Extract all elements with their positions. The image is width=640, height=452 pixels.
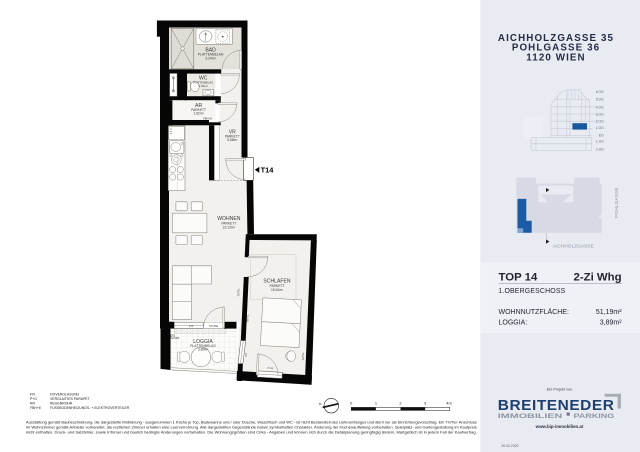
svg-text:WOHNNUTZFLÄCHE:: WOHNNUTZFLÄCHE:: [499, 308, 569, 316]
svg-text:PARKING: PARKING: [574, 413, 615, 420]
svg-text:FIX: FIX: [30, 393, 36, 397]
svg-text:RR: RR: [175, 336, 179, 340]
svg-text:REGENROHR: REGENROHR: [50, 401, 73, 405]
svg-text:5.24m²: 5.24m²: [205, 56, 216, 60]
svg-text:FBH+E: FBH+E: [203, 117, 212, 121]
svg-text:TOP 14: TOP 14: [499, 271, 539, 283]
svg-text:www.bip-immobilien.at: www.bip-immobilien.at: [535, 424, 584, 429]
svg-text:FIXVERGLASUNG: FIXVERGLASUNG: [50, 393, 80, 397]
svg-text:6.OG: 6.OG: [596, 90, 604, 94]
svg-text:1.OG: 1.OG: [596, 126, 604, 130]
svg-text:FIX: FIX: [189, 324, 193, 328]
svg-text:1.UG: 1.UG: [596, 140, 604, 144]
svg-text:POHLGASSE: POHLGASSE: [614, 187, 619, 218]
svg-text:3.89m²: 3.89m²: [198, 348, 209, 352]
svg-text:1.32m²: 1.32m²: [199, 84, 208, 88]
svg-text:2.UG: 2.UG: [596, 148, 604, 152]
svg-text:1120 WIEN: 1120 WIEN: [526, 52, 585, 63]
svg-text:STUFE: STUFE: [209, 324, 218, 328]
svg-text:VERGLASTES PARAPET: VERGLASTES PARAPET: [50, 397, 91, 401]
svg-text:5.68m²: 5.68m²: [227, 138, 238, 142]
svg-text:P+G: P+G: [267, 366, 273, 370]
svg-text:TV/TEL: TV/TEL: [302, 352, 305, 361]
svg-text:TV/TEL: TV/TEL: [247, 314, 250, 323]
svg-text:1: 1: [375, 400, 377, 405]
svg-text:3: 3: [424, 400, 426, 405]
svg-text:22.13m²: 22.13m²: [223, 226, 236, 230]
svg-text:RR: RR: [30, 401, 35, 405]
svg-text:4m: 4m: [446, 400, 451, 405]
svg-text:EG: EG: [599, 133, 604, 137]
svg-text:FUSSBODENHEIZUNGS- + ELEKTROVE: FUSSBODENHEIZUNGS- + ELEKTROVERTEILER: [50, 406, 130, 410]
svg-text:51,19m²: 51,19m²: [596, 309, 622, 316]
svg-text:FBH+E: FBH+E: [30, 406, 42, 410]
svg-text:FIX: FIX: [245, 353, 248, 357]
svg-text:2.OG: 2.OG: [596, 120, 604, 124]
svg-text:1.OBERGESCHOSS: 1.OBERGESCHOSS: [498, 288, 565, 295]
svg-text:2-Zi Whg: 2-Zi Whg: [574, 271, 622, 283]
svg-text:TV/TEL: TV/TEL: [238, 287, 241, 296]
svg-text:3,89m²: 3,89m²: [600, 320, 622, 327]
svg-text:3.OG: 3.OG: [596, 113, 604, 117]
svg-text:20.02.2020: 20.02.2020: [502, 444, 519, 448]
svg-text:T14: T14: [261, 165, 275, 174]
svg-text:nicht enthalten. Druck- und Sa: nicht enthalten. Druck- und Satzfehler, …: [26, 429, 477, 434]
svg-text:P+G: P+G: [30, 397, 37, 401]
svg-text:1.82m²: 1.82m²: [193, 112, 204, 116]
svg-text:AICHHOLZGASSE: AICHHOLZGASSE: [553, 243, 594, 248]
svg-text:15.00m²: 15.00m²: [271, 288, 284, 292]
svg-text:BREITENEDER: BREITENEDER: [498, 398, 615, 414]
svg-text:Ein Projekt von: Ein Projekt von: [547, 387, 573, 391]
svg-text:IMMOBILIEN: IMMOBILIEN: [498, 413, 563, 420]
svg-text:4.OG: 4.OG: [596, 105, 604, 109]
svg-text:LOGGIA:: LOGGIA:: [499, 320, 528, 327]
svg-text:2: 2: [399, 400, 401, 405]
svg-text:5.OG: 5.OG: [596, 97, 604, 101]
